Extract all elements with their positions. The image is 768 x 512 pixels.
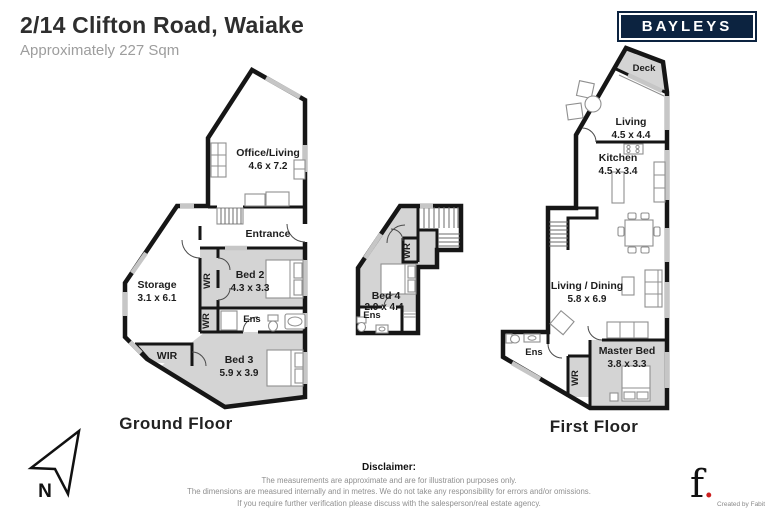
room-dims-kitchen: 4.5 x 3.4 <box>599 166 638 177</box>
first-floor-plan: Deck Living 4.5 x 4.4 Kitchen 4.5 x 3.4 … <box>503 48 667 436</box>
disclaimer-line: The dimensions are measured internally a… <box>104 486 674 497</box>
room-dims-living: 4.5 x 4.4 <box>612 130 651 141</box>
fabit-credit: f. Created by Fabit <box>690 468 768 510</box>
fabit-logo-dot: . <box>703 462 715 506</box>
ground-stairs <box>217 208 243 224</box>
room-label-wr-first: WR <box>570 370 581 386</box>
room-label-bed3: Bed 3 <box>225 354 254 366</box>
room-label-wr-upper: WR <box>202 273 213 289</box>
disclaimer: Disclaimer: The measurements are approxi… <box>104 462 674 509</box>
ground-floor-plan: Office/Living 4.6 x 7.2 Entrance Storage… <box>119 70 309 433</box>
room-label-wr-mid: WR <box>402 243 413 259</box>
room-dims-bed3: 5.9 x 3.9 <box>220 368 259 379</box>
ground-floor-title: Ground Floor <box>119 414 232 433</box>
fabit-credit-text: Created by Fabit <box>717 501 765 508</box>
room-label-deck: Deck <box>633 63 656 74</box>
room-dims-bed2: 4.3 x 3.3 <box>231 283 270 294</box>
room-label-kitchen: Kitchen <box>599 152 638 164</box>
floorplan-drawing: Office/Living 4.6 x 7.2 Entrance Storage… <box>0 0 768 512</box>
room-label-entrance: Entrance <box>246 228 291 240</box>
disclaimer-line: The measurements are approximate and are… <box>104 475 674 486</box>
disclaimer-heading: Disclaimer: <box>104 462 674 473</box>
room-label-storage: Storage <box>137 279 176 291</box>
room-label-ens-first: Ens <box>525 347 542 358</box>
mid-unit-plan: WR Bed 4 2.9 x 4.4 Ens <box>357 206 461 333</box>
room-dims-living-dining: 5.8 x 6.9 <box>568 294 607 305</box>
room-label-living-dining: Living / Dining <box>551 280 623 292</box>
room-label-office-living: Office/Living <box>236 147 300 159</box>
disclaimer-line: If you require further verification plea… <box>104 498 674 509</box>
room-label-wr-lower: WR <box>201 313 212 329</box>
fabit-logo: f. <box>690 462 715 506</box>
bed3-furniture <box>267 350 303 386</box>
first-floor-title: First Floor <box>550 417 638 436</box>
room-dims-storage: 3.1 x 6.1 <box>138 293 177 304</box>
floorplan-page: 2/14 Clifton Road, Waiake Approximately … <box>0 0 768 512</box>
room-label-ens-mid: Ens <box>363 310 380 321</box>
room-label-master: Master Bed <box>599 345 656 357</box>
room-label-living: Living <box>616 116 647 128</box>
first-stairs <box>549 222 568 246</box>
room-dims-office-living: 4.6 x 7.2 <box>249 161 288 172</box>
north-arrow: N <box>31 431 79 502</box>
bed2-furniture <box>266 260 303 298</box>
room-dims-master: 3.8 x 3.3 <box>608 359 647 370</box>
room-label-bed2: Bed 2 <box>236 269 265 281</box>
north-arrow-label: N <box>38 481 52 502</box>
room-label-ens-ground: Ens <box>243 314 260 325</box>
room-label-wir: WIR <box>157 350 178 362</box>
room-label-bed4: Bed 4 <box>372 290 401 302</box>
